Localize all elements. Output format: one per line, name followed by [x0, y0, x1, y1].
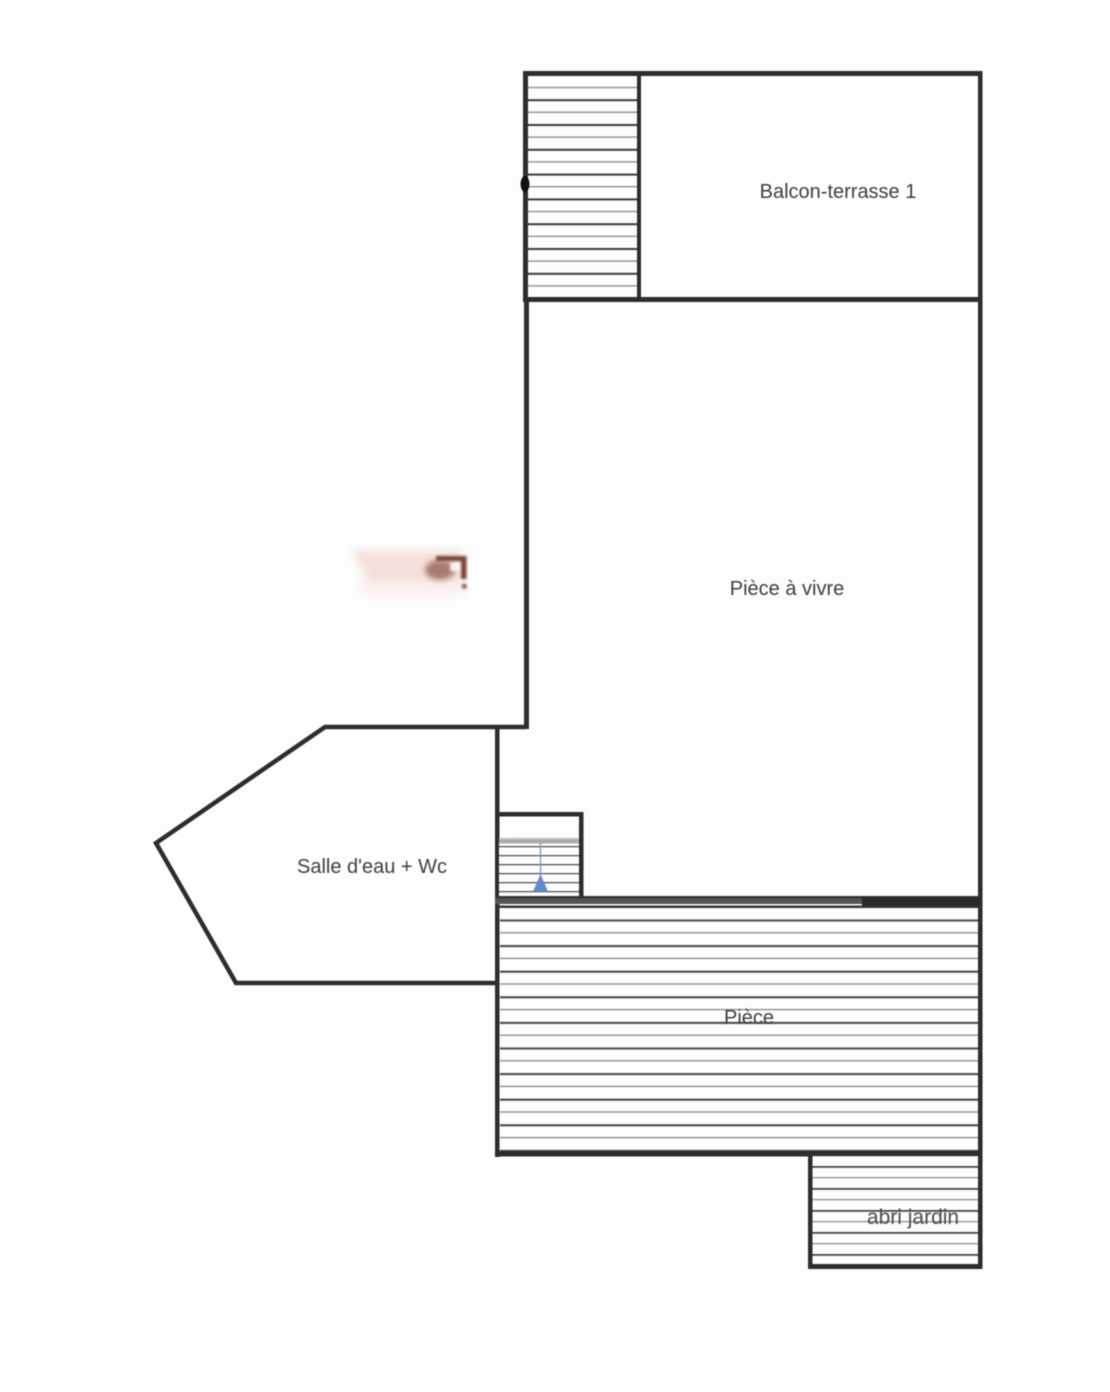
- svg-text:Salle d'eau + Wc: Salle d'eau + Wc: [297, 856, 447, 878]
- svg-text:Pièce à vivre: Pièce à vivre: [730, 578, 845, 600]
- svg-text:Balcon-terrasse 1: Balcon-terrasse 1: [760, 181, 917, 203]
- svg-text:abri jardin: abri jardin: [867, 1206, 959, 1229]
- svg-text:Pièce: Pièce: [724, 1007, 774, 1029]
